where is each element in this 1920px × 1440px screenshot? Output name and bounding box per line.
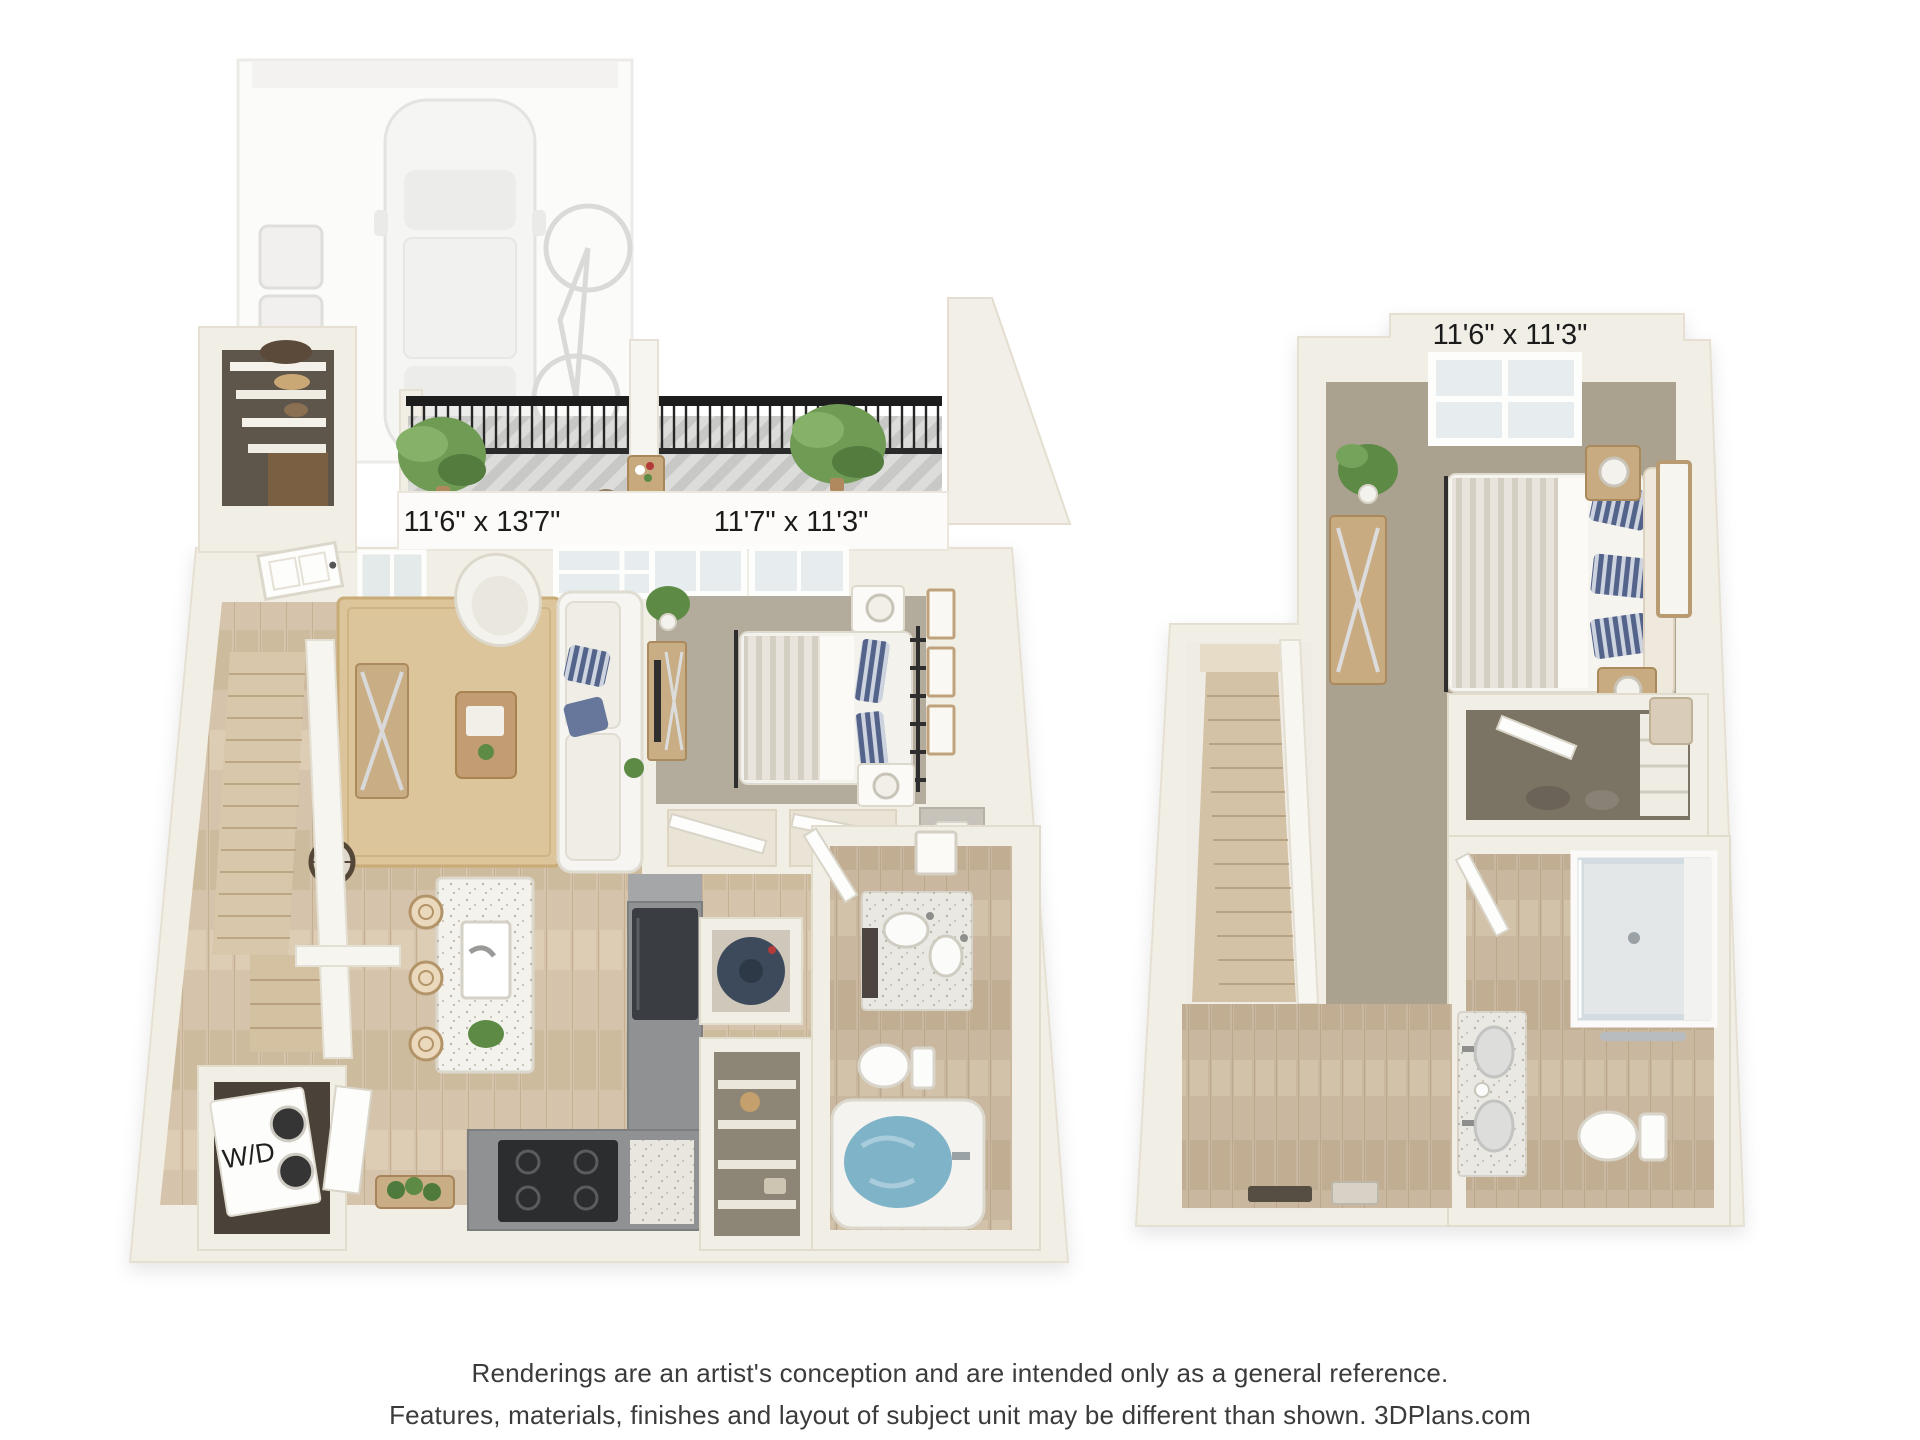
nightstand-bottom-1f: [858, 764, 914, 806]
entry-closet: [199, 327, 356, 552]
floor-plant-crate: [376, 1176, 454, 1208]
disclaimer-line-1: Renderings are an artist's conception an…: [0, 1352, 1920, 1394]
first-floor-plan: 11'6" x 13'7" 11'7" x 11'3": [130, 60, 1070, 1262]
lamp-icon: [874, 774, 898, 798]
stair-half-wall-cap: [296, 946, 400, 966]
tv-icon: [654, 660, 661, 742]
refrigerator: [632, 908, 698, 1020]
bathroom-1f: [804, 826, 1040, 1250]
disclaimer-line-2: Features, materials, finishes and layout…: [0, 1394, 1920, 1436]
bedroom-dimension-label-1f: 11'7" x 11'3": [714, 506, 869, 538]
wall-cabinet: [628, 874, 702, 902]
lamp-icon: [867, 595, 893, 621]
disclaimer: Renderings are an artist's conception an…: [0, 1352, 1920, 1436]
sink: [930, 936, 962, 976]
water-heater-closet: [700, 918, 802, 1024]
medicine-cabinet: [916, 832, 956, 874]
walk-in-closet-2f: [1448, 694, 1708, 836]
bedroom-windows-1f: [652, 548, 846, 594]
floorplan-rendering: 11'6" x 13'7" 11'7" x 11'3": [0, 0, 1920, 1440]
dimension-band-first-floor: 11'6" x 13'7" 11'7" x 11'3": [398, 492, 948, 550]
towel-bar: [1600, 1032, 1686, 1041]
sofa: [558, 592, 642, 872]
balcony-right-wall: [948, 298, 1070, 524]
bedroom-dimension-label-2f: 11'6" x 11'3": [1433, 319, 1588, 351]
toilet-1f: [859, 1045, 934, 1088]
shoe-tray: [1332, 1182, 1378, 1204]
island-sink: [462, 922, 510, 998]
kitchen-island: [437, 878, 533, 1072]
shower-2f: [1574, 854, 1714, 1024]
bathtub: [832, 1100, 984, 1228]
wall-art-2f: [1658, 462, 1690, 616]
stair-landing-top: [1200, 644, 1282, 672]
duffel-bag: [1526, 786, 1570, 810]
bedroom-window-2f: [1432, 356, 1578, 442]
sink: [1475, 1027, 1513, 1077]
bed-2f: [1446, 468, 1674, 696]
island-plant: [468, 1020, 504, 1048]
pantry: [700, 1038, 814, 1250]
wall-art-frames-1f: [928, 590, 954, 754]
patio-door: [360, 552, 424, 600]
duffel-bag: [1585, 790, 1619, 810]
bathroom-2f: [1448, 836, 1730, 1226]
toilet-2f: [1579, 1112, 1666, 1160]
basket: [740, 1092, 760, 1112]
second-floor-plan: 11'6" x 11'3": [1136, 314, 1744, 1226]
nightstand-top-2f: [1586, 446, 1640, 500]
closet-cabinet: [1650, 698, 1692, 744]
garage-door: [252, 62, 618, 88]
storage-box: [764, 1178, 786, 1194]
sink: [884, 913, 928, 947]
stove: [498, 1140, 618, 1222]
shower-drain: [1628, 932, 1640, 944]
vanity-1f: [862, 892, 972, 1010]
console-table: [356, 664, 408, 798]
side-plant: [624, 758, 644, 778]
washer-dryer: W/D: [210, 1087, 321, 1216]
hallway-2f: [1182, 1004, 1452, 1208]
vanity-2f: [1458, 1012, 1526, 1176]
living-dining-dimension-label: 11'6" x 13'7": [404, 506, 561, 538]
bar-stools: [410, 896, 442, 1060]
dresser-2f: [1330, 516, 1386, 684]
coffee-table: [456, 692, 516, 778]
door-mat: [1248, 1186, 1312, 1202]
sink: [1475, 1101, 1513, 1151]
nightstand-top-1f: [852, 586, 904, 632]
tub-faucet: [952, 1152, 970, 1160]
media-console-1f: [648, 642, 686, 760]
lamp-icon: [1600, 458, 1628, 486]
